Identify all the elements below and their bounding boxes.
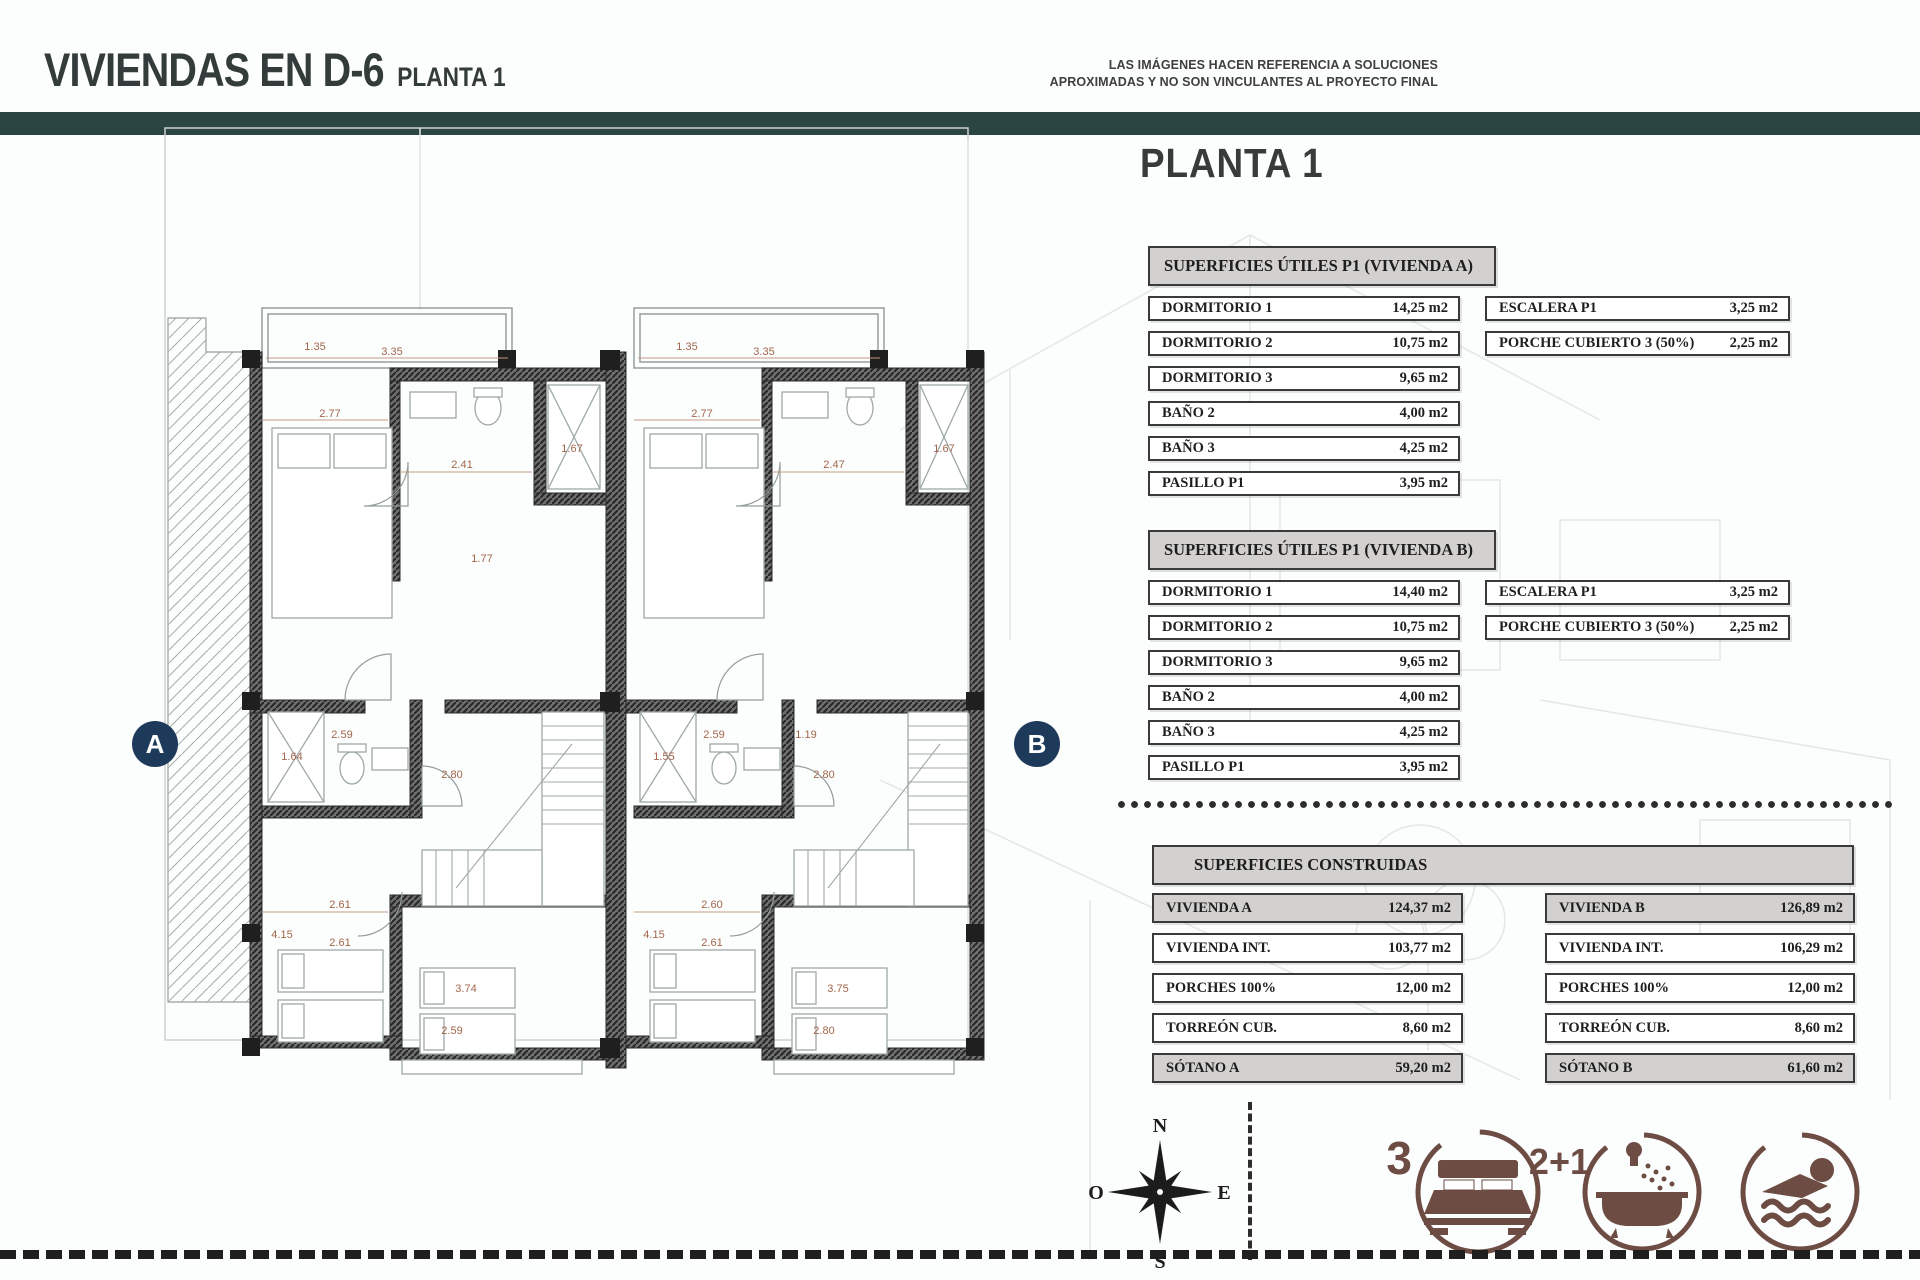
- table-header-useful-b: SUPERFICIES ÚTILES P1 (VIVIENDA B): [1148, 530, 1496, 570]
- svg-text:B: B: [1028, 729, 1047, 759]
- table-row: DORMITORIO 210,75 m2: [1148, 615, 1460, 640]
- table-built-b: VIVIENDA B126,89 m2 VIVIENDA INT.106,29 …: [1545, 893, 1855, 1083]
- table-row: PORCHES 100%12,00 m2: [1152, 973, 1463, 1003]
- table-row: PORCHE CUBIERTO 3 (50%)2,25 m2: [1485, 331, 1790, 356]
- marker-a: A: [132, 721, 178, 767]
- bathrooms-legend: 2+1: [1529, 1113, 1721, 1272]
- dim-label: 4.15: [643, 929, 664, 941]
- unit-a: 1.35 3.35 2.77 2.41 1.67 1.77 2.59 1.64 …: [242, 308, 626, 1074]
- dim-label: 2.80: [813, 1025, 834, 1037]
- dim-label: 2.59: [331, 729, 352, 741]
- svg-text:O: O: [1088, 1182, 1104, 1204]
- table-row: TORREÓN CUB.8,60 m2: [1152, 1013, 1463, 1043]
- table-row: DORMITORIO 114,40 m2: [1148, 580, 1460, 605]
- table-row: ESCALERA P13,25 m2: [1485, 580, 1790, 605]
- dim-label: 3.74: [455, 983, 476, 995]
- table-row: BAÑO 24,00 m2: [1148, 401, 1460, 426]
- dim-label: 1.35: [304, 341, 325, 353]
- dim-label: 1.67: [561, 443, 582, 455]
- table-useful-b-side: ESCALERA P13,25 m2 PORCHE CUBIERTO 3 (50…: [1485, 580, 1790, 640]
- table-row: BAÑO 34,25 m2: [1148, 720, 1460, 745]
- floorplan-drawing: 1.35 3.35 2.77 2.41 1.67 1.77 2.59 1.64 …: [0, 0, 1920, 1280]
- dotted-separator: [1115, 800, 1895, 809]
- dim-label: 1.67: [933, 443, 954, 455]
- dim-label: 2.41: [451, 459, 472, 471]
- table-row: PORCHE CUBIERTO 3 (50%)2,25 m2: [1485, 615, 1790, 640]
- dim-label: 2.60: [701, 899, 722, 911]
- table-row: BAÑO 24,00 m2: [1148, 685, 1460, 710]
- dim-label: 2.61: [329, 899, 350, 911]
- table-row: VIVIENDA INT.106,29 m2: [1545, 933, 1855, 963]
- dim-label: 1.55: [653, 751, 674, 763]
- table-row: TORREÓN CUB.8,60 m2: [1545, 1013, 1855, 1043]
- dim-label: 2.59: [703, 729, 724, 741]
- marker-b: B: [1014, 721, 1060, 767]
- bathrooms-count: 2+1: [1529, 1141, 1590, 1182]
- table-row: PASILLO P13,95 m2: [1148, 755, 1460, 780]
- dim-label: 2.77: [691, 408, 712, 420]
- table-row: VIVIENDA INT.103,77 m2: [1152, 933, 1463, 963]
- dim-label: 4.15: [271, 929, 292, 941]
- table-useful-a: DORMITORIO 114,25 m2 DORMITORIO 210,75 m…: [1148, 296, 1460, 496]
- svg-text:A: A: [146, 729, 165, 759]
- table-row: DORMITORIO 39,65 m2: [1148, 650, 1460, 675]
- bottom-dashed-border: [0, 1250, 1920, 1259]
- table-row: SÓTANO A59,20 m2: [1152, 1053, 1463, 1083]
- table-row: DORMITORIO 210,75 m2: [1148, 331, 1460, 356]
- dim-label: 1.35: [676, 341, 697, 353]
- pool-legend: [1721, 1113, 1880, 1272]
- dim-label: 3.35: [381, 346, 402, 358]
- dim-label: 2.59: [441, 1025, 462, 1037]
- table-useful-a-side: ESCALERA P13,25 m2 PORCHE CUBIERTO 3 (50…: [1485, 296, 1790, 356]
- dim-label: 3.35: [753, 346, 774, 358]
- dim-label: 2.47: [823, 459, 844, 471]
- dim-label: 1.19: [795, 729, 816, 741]
- dim-label: 1.77: [471, 553, 492, 565]
- dim-label: 2.80: [813, 769, 834, 781]
- table-row: VIVIENDA A124,37 m2: [1152, 893, 1463, 923]
- table-row: ESCALERA P13,25 m2: [1485, 296, 1790, 321]
- site-hatch-strip: [168, 318, 252, 1002]
- table-useful-b: DORMITORIO 114,40 m2 DORMITORIO 210,75 m…: [1148, 580, 1460, 780]
- floorplan-sheet: VIVIENDAS EN D-6PLANTA 1 LAS IMÁGENES HA…: [0, 0, 1920, 1280]
- dim-label: 1.64: [281, 751, 302, 763]
- bedrooms-count: 3: [1386, 1132, 1412, 1184]
- table-row: PORCHES 100%12,00 m2: [1545, 973, 1855, 1003]
- table-row: PASILLO P13,95 m2: [1148, 471, 1460, 496]
- table-row: VIVIENDA B126,89 m2: [1545, 893, 1855, 923]
- vertical-dashed-separator: [1248, 1102, 1252, 1260]
- panel-heading: PLANTA 1: [1140, 140, 1324, 187]
- dim-label: 2.61: [329, 937, 350, 949]
- svg-text:E: E: [1217, 1182, 1230, 1204]
- unit-b: 1.35 3.35 2.77 2.47 1.67 2.59 1.19 1.55 …: [626, 308, 984, 1074]
- dim-label: 3.75: [827, 983, 848, 995]
- table-row: BAÑO 34,25 m2: [1148, 436, 1460, 461]
- table-header-useful-a: SUPERFICIES ÚTILES P1 (VIVIENDA A): [1148, 246, 1496, 286]
- table-built-a: VIVIENDA A124,37 m2 VIVIENDA INT.103,77 …: [1152, 893, 1463, 1083]
- table-row: DORMITORIO 114,25 m2: [1148, 296, 1460, 321]
- svg-text:N: N: [1153, 1115, 1168, 1137]
- dim-label: 2.80: [441, 769, 462, 781]
- table-header-built: SUPERFICIES CONSTRUIDAS: [1152, 845, 1854, 885]
- table-row: DORMITORIO 39,65 m2: [1148, 366, 1460, 391]
- table-row: SÓTANO B61,60 m2: [1545, 1053, 1855, 1083]
- dim-label: 2.61: [701, 937, 722, 949]
- dim-label: 2.77: [319, 408, 340, 420]
